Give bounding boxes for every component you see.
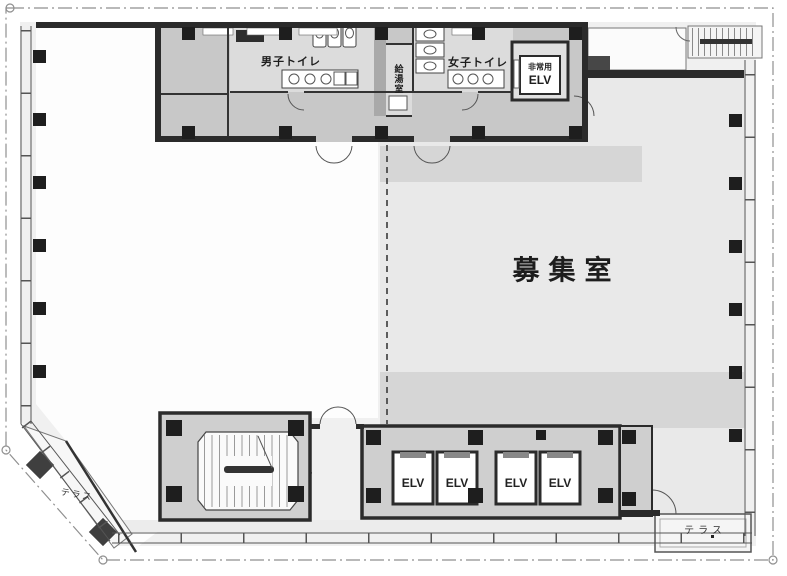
elevator-3-label: ELV bbox=[505, 476, 527, 490]
womens-toilet-label: 女子トイレ bbox=[448, 54, 508, 70]
terrace-right-label: テラス bbox=[684, 522, 726, 537]
mens-toilet-label: 男子トイレ bbox=[261, 53, 321, 69]
south-corridor bbox=[115, 520, 655, 532]
elevator-2-label: ELV bbox=[446, 476, 468, 490]
elevator-1-label: ELV bbox=[402, 476, 424, 490]
notch-shaft bbox=[588, 56, 610, 70]
elevator-block bbox=[362, 426, 620, 518]
floor-plan-canvas: 男子トイレ 女子トイレ 給湯室 非常用 ELV 募集室 ELV ELV ELV … bbox=[0, 0, 787, 576]
exterior-stair-top-right bbox=[676, 26, 762, 58]
emergency-elevator-label-bottom: ELV bbox=[529, 73, 551, 87]
emergency-elevator-label-top: 非常用 bbox=[528, 62, 552, 73]
main-room-label: 募集室 bbox=[504, 249, 621, 288]
between-blocks-lobby bbox=[312, 430, 360, 518]
kitchenette-sink bbox=[389, 96, 407, 110]
elevator-4-label: ELV bbox=[549, 476, 571, 490]
stairwell-block bbox=[160, 413, 310, 520]
annex-right bbox=[620, 426, 652, 516]
kitchenette-label: 給湯室 bbox=[393, 64, 406, 94]
